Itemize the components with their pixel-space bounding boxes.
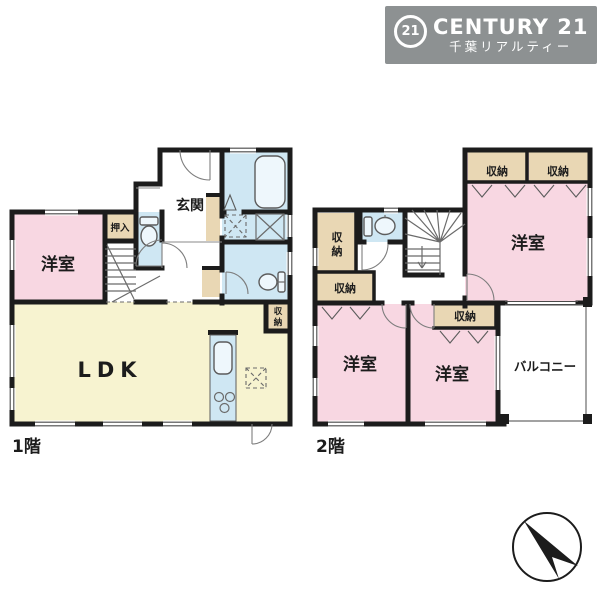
shoe-cabinet bbox=[206, 197, 220, 241]
label-oshiire: 押入 bbox=[110, 222, 130, 234]
floor1-plan: 玄関 押入 洋室 LDK 収 納 1階 bbox=[9, 147, 294, 458]
label-western-room-2f-left: 洋室 bbox=[343, 354, 377, 375]
toilet-fixture-2f bbox=[364, 215, 395, 236]
floorplan-canvas: 玄関 押入 洋室 LDK 収 納 1階 bbox=[0, 0, 600, 600]
north-arrow-compass bbox=[513, 513, 581, 581]
label-storage-2f-d: 収納 bbox=[454, 309, 476, 323]
label-storage-2f-a: 収納 bbox=[486, 164, 508, 178]
label-storage-2f-v2: 納 bbox=[332, 244, 343, 258]
label-balcony: バルコニー bbox=[514, 359, 576, 374]
floorplan-page: 21 CENTURY 21 千葉リアルティー bbox=[0, 0, 600, 600]
label-floor2: 2階 bbox=[316, 437, 345, 457]
label-ldk: LDK bbox=[77, 358, 142, 382]
label-western-room-1f: 洋室 bbox=[41, 254, 75, 275]
bathtub bbox=[255, 156, 285, 208]
label-storage-2f-c: 収納 bbox=[334, 281, 356, 295]
hall-cabinet-1f bbox=[202, 270, 220, 297]
kitchen-counter bbox=[208, 330, 238, 421]
toilet-fixture-1f-lower bbox=[259, 272, 285, 292]
label-western-room-2f-big: 洋室 bbox=[511, 233, 545, 254]
room-ldk bbox=[12, 302, 290, 424]
toilet-fixture-1f bbox=[140, 217, 158, 246]
floor2-plan: 収納 収納 洋室 収 納 収納 収納 洋室 洋室 バルコニー 2階 bbox=[312, 150, 594, 457]
label-storage-ldk-1: 収 bbox=[274, 306, 283, 317]
label-floor1: 1階 bbox=[12, 437, 41, 457]
label-storage-2f-b: 収納 bbox=[547, 164, 569, 178]
label-entrance: 玄関 bbox=[176, 197, 204, 214]
label-storage-ldk-2: 納 bbox=[274, 317, 283, 328]
label-western-room-2f-middle: 洋室 bbox=[435, 364, 469, 385]
label-storage-2f-v1: 収 bbox=[332, 231, 344, 244]
